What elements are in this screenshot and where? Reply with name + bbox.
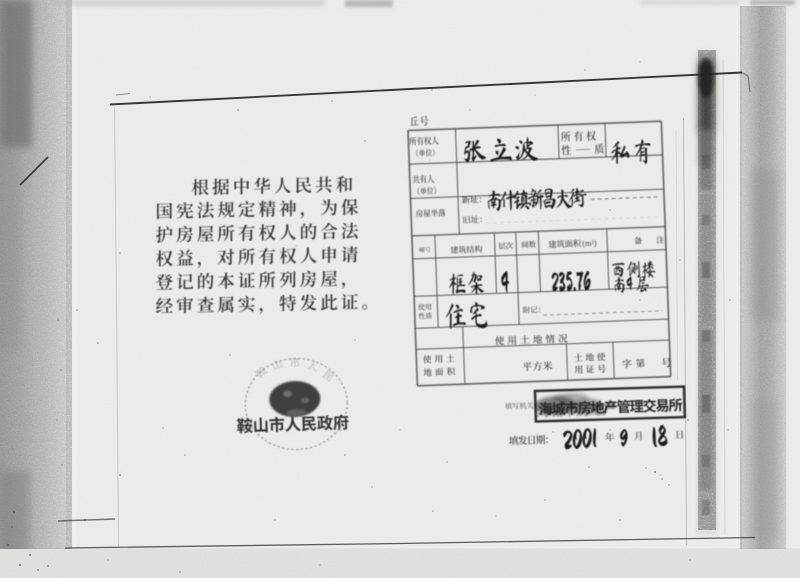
svg-text:(m²): (m²) [582, 239, 597, 249]
